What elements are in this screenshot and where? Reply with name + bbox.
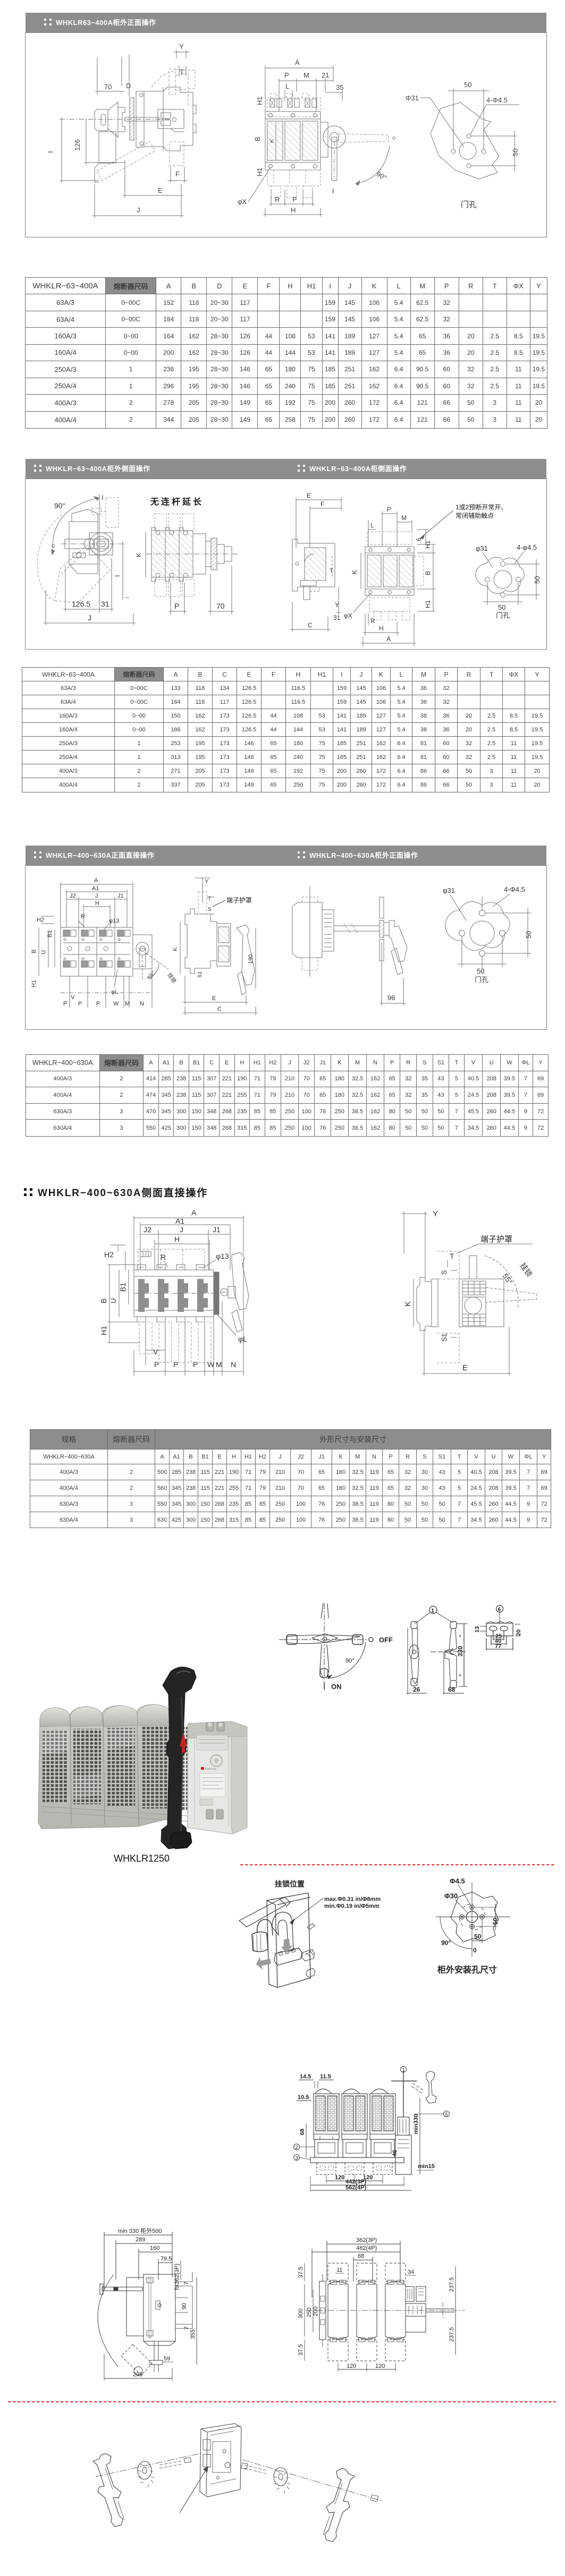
svg-text:H2: H2 [37,917,44,923]
svg-text:φ31: φ31 [476,544,488,552]
svg-text:K: K [403,1301,412,1307]
svg-text:fix362(3P): fix362(3P) [174,2264,180,2290]
svg-text:E: E [212,995,216,1002]
svg-text:295: 295 [133,2372,142,2378]
svg-text:A: A [94,877,98,884]
svg-text:E: E [307,492,311,499]
svg-text:W: W [113,1001,119,1007]
svg-text:K: K [269,139,275,143]
svg-text:S1: S1 [197,971,203,978]
svg-text:KaiKong: KaiKong [205,1768,216,1771]
svg-text:M: M [303,71,309,79]
svg-text:无连杆延长: 无连杆延长 [150,497,204,507]
svg-text:H1: H1 [424,600,432,608]
svg-text:L: L [285,82,289,90]
svg-text:端子护罩: 端子护罩 [480,1235,512,1244]
svg-text:φL: φL [111,989,118,995]
svg-text:50: 50 [464,81,471,89]
svg-text:20: 20 [516,1630,522,1636]
svg-text:362(3P): 362(3P) [356,2237,377,2244]
svg-text:V: V [153,1347,158,1356]
svg-text:φ13: φ13 [109,918,119,924]
svg-text:R: R [370,617,375,625]
svg-text:A: A [191,1208,197,1217]
svg-text:P: P [78,1001,82,1007]
svg-text:Y: Y [433,1209,438,1218]
svg-text:P: P [387,506,391,513]
svg-text:1: 1 [431,1608,434,1614]
svg-text:H: H [95,900,99,907]
svg-text:B: B [424,571,432,575]
svg-text:190: 190 [248,954,254,964]
svg-text:D: D [126,82,131,90]
svg-text:φL: φL [238,1335,247,1343]
svg-text:B: B [99,1299,108,1303]
svg-text:I: I [102,494,103,501]
svg-text:H1: H1 [256,167,264,176]
svg-text:M: M [401,514,407,522]
svg-text:Φ30: Φ30 [444,1892,458,1900]
svg-text:=: = [458,1634,463,1637]
svg-text:I: I [46,151,54,153]
svg-text:J1: J1 [117,893,124,899]
svg-text:55°: 55° [147,970,157,981]
svg-text:K: K [172,947,179,951]
svg-text:E: E [462,1363,468,1372]
svg-text:S1: S1 [440,1333,448,1342]
svg-text:F: F [321,500,324,508]
svg-text:120: 120 [375,2363,385,2369]
svg-text:min330: min330 [413,2114,419,2134]
svg-text:P: P [193,1360,198,1369]
svg-text:330: 330 [457,1646,464,1657]
svg-text:37.5: 37.5 [298,2267,304,2278]
svg-text:50: 50 [498,603,505,611]
svg-text:35: 35 [336,83,343,91]
svg-text:90°: 90° [375,170,389,182]
svg-text:P: P [154,1360,159,1369]
svg-text:90°: 90° [345,1658,355,1664]
svg-text:250: 250 [306,2308,313,2317]
svg-text:31: 31 [101,600,109,608]
svg-text:90: 90 [181,2303,188,2309]
svg-text:50: 50 [525,931,533,939]
svg-text:6: 6 [415,538,423,541]
svg-text:H1: H1 [99,1326,108,1335]
svg-text:挂锁: 挂锁 [519,1261,534,1278]
svg-text:R: R [275,195,280,203]
svg-text:门孔: 门孔 [461,200,477,209]
svg-text:J2: J2 [70,893,76,899]
svg-text:J: J [88,613,91,622]
svg-text:7: 7 [183,2326,190,2330]
svg-text:13: 13 [475,1626,480,1633]
svg-text:79.5: 79.5 [161,2256,172,2262]
svg-text:U: U [109,1298,117,1303]
svg-text:126: 126 [73,139,81,151]
svg-text:F: F [175,170,180,178]
svg-text:0: 0 [473,1947,477,1954]
svg-text:U: U [40,950,47,954]
svg-text:237.5: 237.5 [449,2327,455,2342]
svg-text:R: R [161,1253,166,1261]
svg-text:482(4P): 482(4P) [356,2245,377,2251]
svg-text:126.5: 126.5 [72,600,90,608]
svg-text:常闭辅助触点: 常闭辅助触点 [456,512,494,519]
svg-text:120: 120 [347,2363,356,2369]
svg-text:A1: A1 [92,885,99,892]
svg-text:J: J [137,206,140,214]
svg-text:A: A [386,635,391,643]
svg-text:50: 50 [511,149,519,156]
svg-text:H1: H1 [31,980,37,987]
svg-text:P: P [284,71,289,79]
svg-text:φX: φX [344,612,352,619]
svg-text:A: A [295,58,300,66]
svg-text:M: M [216,1360,222,1369]
svg-text:N: N [140,1001,144,1007]
svg-text:50: 50 [474,1933,482,1940]
svg-text:min 330 柜外500: min 330 柜外500 [118,2228,162,2234]
svg-text:R: R [81,914,85,920]
svg-text:ON: ON [331,1683,342,1691]
svg-text:70: 70 [104,83,112,91]
svg-text:S: S [440,1270,448,1275]
svg-text:J: J [95,893,98,899]
svg-text:T: T [180,68,184,76]
svg-text:S: S [208,907,212,912]
svg-text:50: 50 [477,967,484,975]
svg-text:φX: φX [238,198,247,206]
svg-text:J1: J1 [213,1225,221,1234]
svg-text:门孔: 门孔 [475,976,488,984]
svg-text:Φ31: Φ31 [406,94,419,102]
svg-text:=: = [458,1674,463,1677]
svg-text:Y: Y [205,878,209,885]
svg-text:50: 50 [533,576,541,584]
svg-text:A1: A1 [175,1217,184,1225]
svg-text:Y: Y [179,42,184,50]
svg-text:P: P [63,1001,67,1007]
svg-text:50: 50 [492,1917,499,1925]
svg-text:B: B [254,137,262,141]
svg-text:90°: 90° [54,501,65,510]
svg-text:200: 200 [313,2307,319,2316]
svg-text:11: 11 [336,2267,342,2273]
svg-text:P: P [173,1360,178,1369]
svg-text:1: 1 [402,2067,405,2072]
svg-text:φ31: φ31 [443,886,455,894]
svg-text:B: B [31,950,37,953]
svg-text:P: P [292,195,297,203]
svg-text:120: 120 [335,2174,344,2181]
svg-text:7: 7 [183,2282,190,2285]
svg-text:4-Φ4.5: 4-Φ4.5 [504,885,525,893]
svg-text:min15: min15 [418,2163,435,2170]
svg-text:H1: H1 [256,96,264,105]
svg-text:21: 21 [322,71,329,79]
svg-text:3: 3 [296,2155,298,2161]
svg-text:160: 160 [150,2245,159,2251]
svg-text:E: E [158,186,163,194]
svg-text:4-φ4.5: 4-φ4.5 [517,543,537,551]
svg-text:φ13: φ13 [216,1252,229,1260]
svg-text:J: J [180,1225,183,1234]
svg-text:26: 26 [413,1686,420,1693]
svg-text:M: M [125,1001,130,1007]
svg-text:C: C [217,1006,222,1012]
svg-text:77: 77 [495,1643,501,1650]
svg-text:14.5: 14.5 [300,2074,311,2080]
svg-text:K: K [135,553,142,557]
svg-text:289: 289 [136,2237,145,2243]
svg-text:96: 96 [387,994,395,1002]
svg-text:K: K [351,570,358,574]
svg-text:W: W [207,1360,215,1369]
svg-text:Φ4.5: Φ4.5 [450,1877,465,1885]
svg-text:4-Φ4.5: 4-Φ4.5 [486,96,508,104]
svg-text:88: 88 [358,2253,364,2259]
svg-text:2: 2 [296,2145,298,2150]
svg-text:46: 46 [392,2150,398,2156]
svg-text:挂锁: 挂锁 [166,971,178,984]
svg-text:I: I [332,187,334,195]
svg-text:300: 300 [298,2309,304,2318]
svg-text:B1: B1 [47,931,53,937]
svg-text:P: P [174,602,179,610]
svg-text:T: T [450,1252,454,1260]
svg-text:B1: B1 [119,1283,127,1292]
svg-text:门孔: 门孔 [496,611,510,619]
svg-text:N: N [231,1360,236,1369]
svg-text:C: C [308,621,313,629]
svg-text:H: H [174,1235,180,1243]
svg-text:I: I [114,575,121,577]
svg-text:P: P [96,1001,100,1007]
svg-text:59: 59 [164,2356,170,2362]
svg-text:J2: J2 [144,1225,151,1234]
svg-text:V: V [71,994,75,1001]
svg-text:355: 355 [190,2330,196,2339]
svg-text:562(4P): 562(4P) [345,2185,366,2191]
svg-text:70: 70 [216,602,225,610]
svg-text:6: 6 [498,1607,501,1613]
svg-text:11.5: 11.5 [320,2074,331,2080]
svg-text:68: 68 [448,1686,456,1693]
svg-text:OFF: OFF [379,1636,393,1644]
svg-text:31: 31 [333,614,341,621]
svg-text:端子护罩: 端子护罩 [226,897,252,904]
svg-text:L: L [370,522,374,529]
svg-text:H2: H2 [104,1250,114,1259]
svg-text:H: H [291,206,296,214]
svg-text:H: H [379,625,384,632]
svg-text:237.5: 237.5 [449,2277,455,2292]
svg-text:34: 34 [408,2269,414,2275]
svg-text:5: 5 [445,2112,448,2117]
svg-text:10.5: 10.5 [298,2094,309,2101]
svg-text:68: 68 [299,2129,306,2135]
svg-text:90°: 90° [441,1939,451,1947]
svg-text:Y: Y [335,601,339,609]
svg-text:37.5: 37.5 [298,2344,304,2356]
svg-text:T: T [330,568,333,574]
svg-text:1或2预断开常开、: 1或2预断开常开、 [456,503,507,511]
